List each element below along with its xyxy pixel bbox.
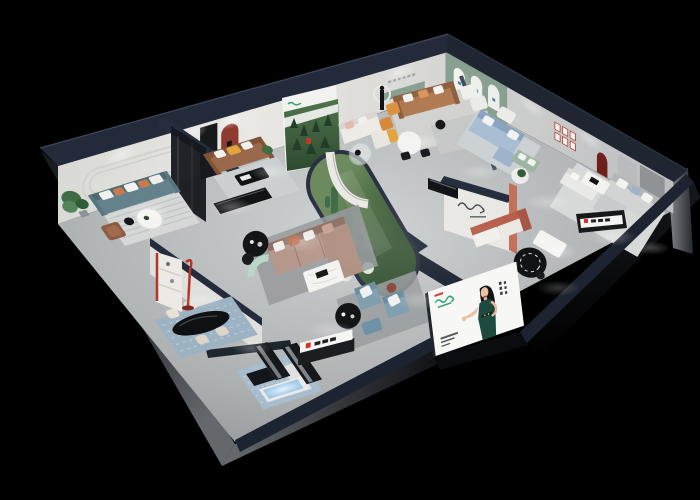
poster-red-label bbox=[306, 138, 311, 144]
showroom-svg bbox=[0, 0, 700, 500]
brand-red-emblem bbox=[584, 219, 588, 223]
shelf-item bbox=[170, 279, 174, 283]
brand-glyph-bar bbox=[591, 219, 596, 222]
brand-glyph-bar bbox=[605, 218, 610, 221]
showroom-render bbox=[0, 0, 700, 500]
display-shelf bbox=[156, 252, 182, 312]
brand-glyph-bar bbox=[598, 219, 603, 222]
statue bbox=[380, 90, 384, 110]
shelf-item bbox=[166, 262, 170, 266]
